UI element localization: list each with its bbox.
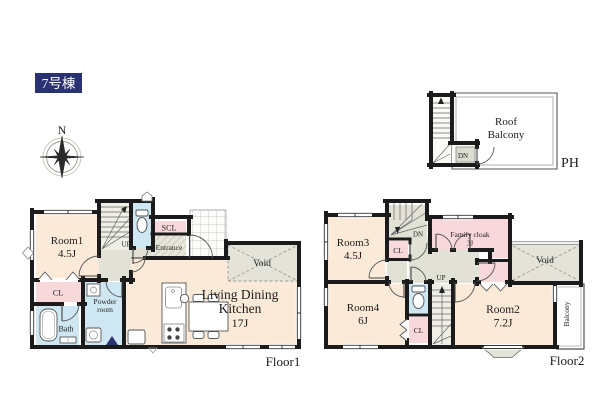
shoe-closet-label: SCL <box>162 224 177 233</box>
ldk-label-2: Kitchen <box>219 301 262 316</box>
washing-machine-icon <box>86 328 101 342</box>
floor2-plan: Room3 4.5J DN CL Family cloak 3J UP CL R… <box>323 201 585 368</box>
roof-balcony-label-2: Balcony <box>488 129 525 141</box>
powder-label-2: room <box>97 305 113 314</box>
room1-size-label: 4.5J <box>58 248 77 260</box>
wc-closet-label: CL <box>414 326 424 335</box>
floor2-up-label: UP <box>437 274 446 282</box>
ph-label: PH <box>561 156 579 171</box>
roof-stairwell <box>432 97 450 163</box>
vent-marker <box>142 192 152 201</box>
floor2-stairwell-up <box>432 284 451 345</box>
toilet2-icon <box>412 286 425 309</box>
compass-icon: N <box>40 123 84 178</box>
building-title-badge: 7号棟 <box>35 73 82 93</box>
roof-plan: DN Roof Balcony PH <box>429 93 579 171</box>
roof-balcony-label-1: Roof <box>495 116 517 128</box>
room2-label: Room2 <box>486 304 520 316</box>
building-title: 7号棟 <box>42 76 76 91</box>
roof-dn-label: DN <box>458 152 468 160</box>
closet2b-area <box>479 262 508 282</box>
room1-label: Room1 <box>51 235 83 247</box>
floor-plan-page: 7号棟 N <box>0 0 600 408</box>
porch-area <box>190 210 226 258</box>
ldk-label-1: Living Dining <box>202 287 279 302</box>
kitchen-counter-icon <box>162 283 186 343</box>
floor2-dn-label: DN <box>413 231 423 239</box>
bath-label: Bath <box>58 325 73 334</box>
void1-label: Void <box>253 259 271 269</box>
room4-size-label: 6J <box>358 315 369 327</box>
floor1-corridor <box>99 250 131 281</box>
floor1-up-label: UP <box>122 241 131 249</box>
powder-sink-icon <box>87 284 100 296</box>
room3-label: Room3 <box>337 237 370 249</box>
void2-label: Void <box>536 256 554 266</box>
toilet1-icon <box>136 210 148 233</box>
entrance-label: Entrance <box>156 243 183 252</box>
room4-label: Room4 <box>347 302 380 314</box>
refrigerator-icon <box>128 330 145 344</box>
floor2-label: Floor2 <box>550 353 585 368</box>
compass-star <box>40 136 84 178</box>
balcony-label: Balcony <box>562 301 571 326</box>
ldk-size-label: 17J <box>232 316 249 330</box>
hall-closet-label: CL <box>393 246 403 255</box>
room2-size-label: 7.2J <box>494 318 513 330</box>
family-cloak-size-label: 3J <box>467 240 474 248</box>
room3-size-label: 4.5J <box>344 250 363 262</box>
floor1-plan: Room1 4.5J CL Bath Powder room UP SCL En… <box>23 192 303 369</box>
floor-plan-drawing: 7号棟 N <box>0 0 600 408</box>
floor1-label: Floor1 <box>266 354 301 369</box>
family-cloak-label: Family cloak <box>450 230 490 239</box>
closet1-label: CL <box>53 289 63 298</box>
compass-north-label: N <box>58 123 67 137</box>
